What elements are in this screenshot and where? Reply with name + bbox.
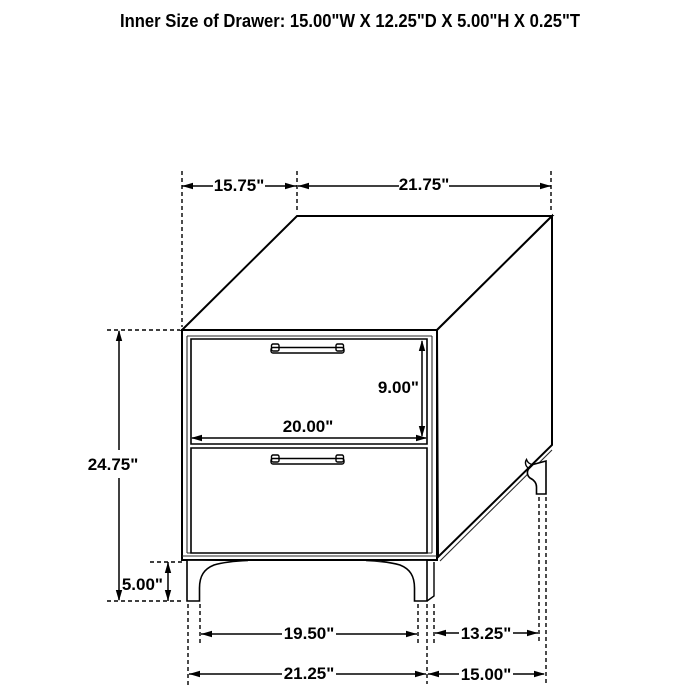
- arrow-right: [415, 671, 426, 677]
- arrow-left: [182, 183, 193, 189]
- arrow-right: [534, 671, 545, 677]
- furniture-dimension-diagram: Inner Size of Drawer: 15.00"W X 12.25"D …: [0, 0, 700, 700]
- arrow-left: [428, 671, 439, 677]
- front-left-leg: [187, 560, 248, 601]
- nightstand-drawing: [182, 216, 552, 601]
- front-right-leg: [366, 560, 427, 601]
- arrow-up: [165, 562, 171, 573]
- dim-top-depth: 15.75": [182, 176, 297, 195]
- dim-side-leg-spacing: 13.25": [435, 624, 538, 643]
- front-right-leg-side-edge: [427, 562, 434, 601]
- diagram-title: Inner Size of Drawer: 15.00"W X 12.25"D …: [120, 11, 580, 31]
- dim-overall-height: 24.75": [88, 330, 139, 601]
- dim-label-drawer-height: 9.00": [378, 378, 419, 397]
- dim-label-top-width: 21.75": [399, 175, 450, 194]
- dim-front-leg-spacing: 19.50": [201, 624, 417, 643]
- dim-label-side-leg-spacing: 13.25": [461, 624, 512, 643]
- arrow-left: [189, 671, 200, 677]
- arrow-right: [285, 183, 296, 189]
- arrow-down: [165, 590, 171, 601]
- dim-label-front-leg-spacing: 19.50": [284, 624, 335, 643]
- dim-top-width: 21.75": [298, 175, 551, 194]
- dim-label-leg-height: 5.00": [122, 575, 163, 594]
- arrow-right: [527, 630, 538, 636]
- diagram-svg: Inner Size of Drawer: 15.00"W X 12.25"D …: [0, 0, 700, 700]
- arrow-left: [201, 631, 212, 637]
- arrow-right: [406, 631, 417, 637]
- dim-label-overall-width: 21.25": [284, 664, 335, 683]
- dim-label-overall-height: 24.75": [88, 455, 139, 474]
- dim-overall-width: 21.25": [189, 664, 426, 683]
- dim-label-drawer-width: 20.00": [283, 417, 334, 436]
- dim-overall-depth: 15.00": [428, 665, 545, 684]
- dim-leg-height: 5.00": [122, 562, 171, 601]
- arrow-left: [435, 630, 446, 636]
- arrow-right: [540, 183, 551, 189]
- arrow-left: [298, 183, 309, 189]
- dim-label-top-depth: 15.75": [214, 176, 265, 195]
- dim-label-overall-depth: 15.00": [461, 665, 512, 684]
- arrow-up: [116, 330, 122, 341]
